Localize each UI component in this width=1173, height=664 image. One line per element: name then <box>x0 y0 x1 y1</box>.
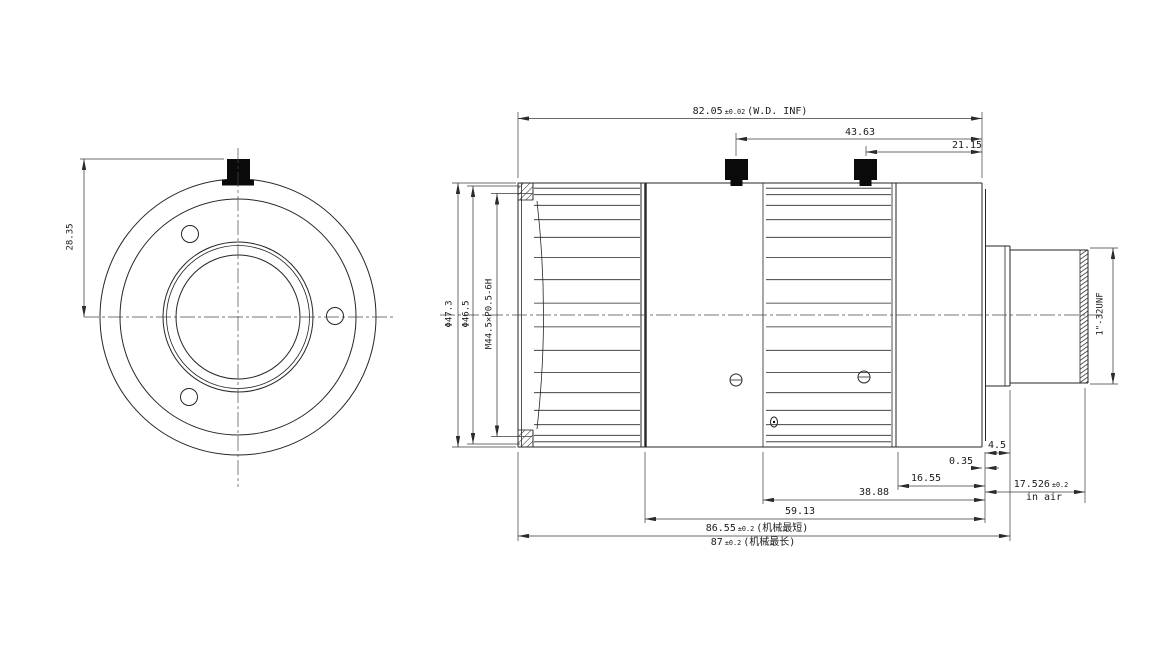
lens-drawing <box>0 0 1173 664</box>
dim-body-length: 59.13 <box>785 507 815 517</box>
dim-knob2-offset: 21.15 <box>952 141 982 151</box>
filter-thread-hatch <box>518 430 533 447</box>
iris-lock-knob <box>854 159 877 180</box>
screw-hole <box>181 389 198 406</box>
screw-hole <box>327 308 344 325</box>
lock-knob <box>227 159 250 181</box>
dim-flange-step: 0.35 <box>949 457 973 467</box>
dim-iris-section: 38.88 <box>859 488 889 498</box>
dim-working-distance: 82.05 ±0.02 (W.D. INF) <box>693 107 808 117</box>
dim-flange-focal-distance: 17.526 ±0.2 <box>1014 480 1069 490</box>
dim-filter-thread: M44.5×P0.5-6H <box>486 279 495 349</box>
dim-mount-ring-width: 4.5 <box>988 441 1006 451</box>
c-mount-thread-hatch <box>1080 250 1088 383</box>
filter-thread-hatch <box>518 183 533 200</box>
screw-hole <box>182 226 199 243</box>
dim-flange-focal-distance-note: in air <box>1026 493 1062 503</box>
dim-mount-thread: 1"-32UNF <box>1097 292 1106 335</box>
dim-rear-section: 16.55 <box>911 474 941 484</box>
dim-front-diameter: Φ46.5 <box>463 300 472 327</box>
dim-knob-height: 28.35 <box>67 223 76 250</box>
dim-knob1-offset: 43.63 <box>845 128 875 138</box>
drawing-canvas: 82.05 ±0.02 (W.D. INF) 43.63 21.15 28.35… <box>0 0 1173 664</box>
front-view <box>80 148 396 487</box>
focus-lock-knob <box>725 159 748 180</box>
dim-outer-diameter: Φ47.3 <box>446 300 455 327</box>
side-view <box>440 112 1118 541</box>
dim-mech-max-length: 87 ±0.2 (机械最长) <box>711 538 795 548</box>
dim-mech-min-length: 86.55 ±0.2 (机械最短) <box>706 524 809 534</box>
